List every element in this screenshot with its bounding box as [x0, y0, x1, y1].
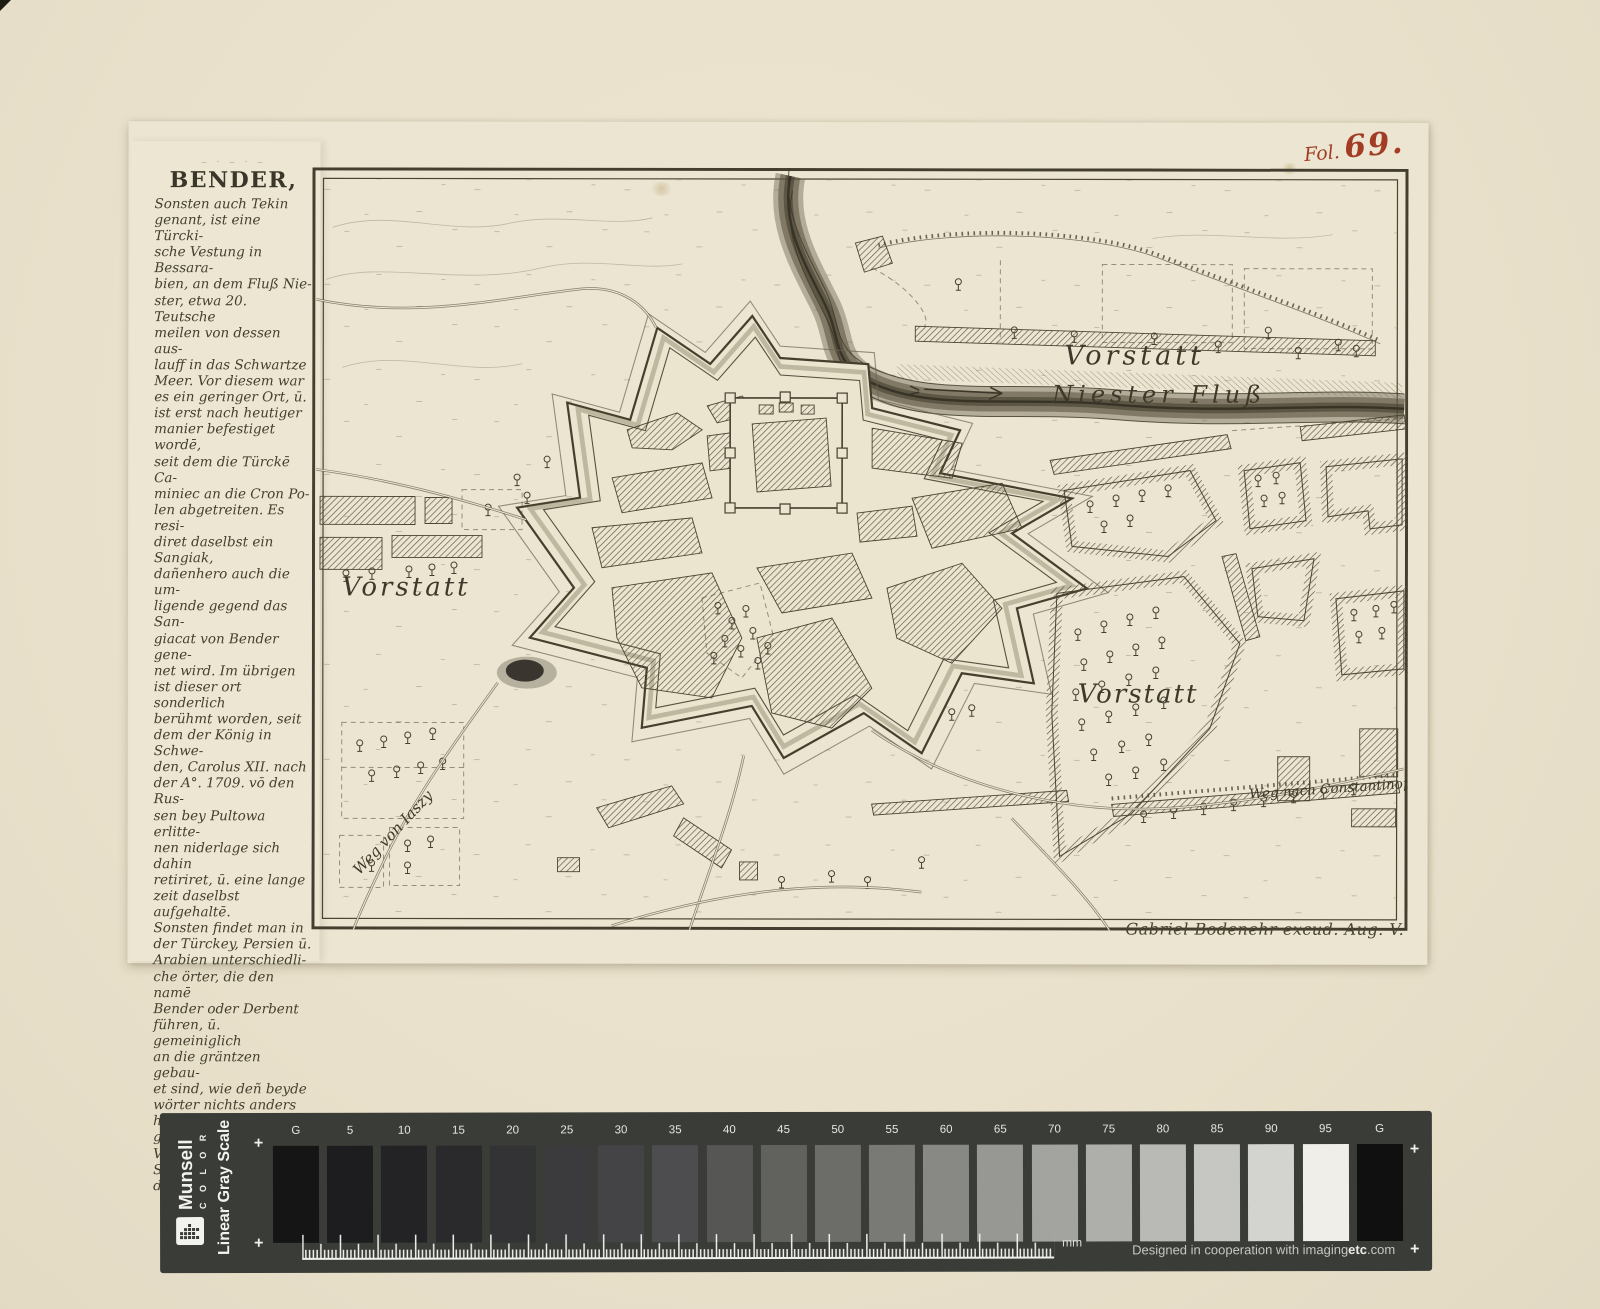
- label-vorstatt-west: Vorstatt: [342, 572, 471, 602]
- grayscale-patch-label: 45: [761, 1124, 807, 1145]
- map-plate: Vorstatt Niester Fluß Vorstatt Vorstatt …: [311, 167, 1408, 931]
- grayscale-patch: 60: [923, 1124, 969, 1242]
- mm-unit-label: mm: [1062, 1236, 1082, 1250]
- registration-plus: +: [1410, 1241, 1419, 1259]
- registration-plus: +: [1410, 1141, 1419, 1159]
- grayscale-patch: 35: [652, 1124, 698, 1242]
- map-sheet: Fol. 69. – · – · – BENDER, Sonsten auch …: [127, 121, 1428, 965]
- description-strip: – · – · – BENDER, Sonsten auch Tekin gen…: [129, 141, 320, 961]
- grayscale-patch: 70: [1032, 1124, 1078, 1242]
- scanner-corner-artifact: [0, 0, 11, 11]
- grayscale-swatch: [1140, 1144, 1186, 1241]
- credit-text: Designed in cooperation with imagingetc.…: [1132, 1242, 1395, 1257]
- grayscale-patch: 75: [1086, 1123, 1132, 1241]
- grayscale-patch: 50: [815, 1124, 861, 1242]
- grayscale-patch: 80: [1140, 1123, 1186, 1241]
- grayscale-patch: 65: [977, 1124, 1023, 1242]
- grayscale-patch-label: 65: [977, 1124, 1023, 1145]
- folio-value: 69.: [1343, 125, 1406, 166]
- grayscale-patch: 30: [598, 1124, 644, 1242]
- label-vorstatt-north: Vorstatt: [1064, 340, 1205, 371]
- label-niester-fluss: Niester Fluß: [1051, 380, 1266, 408]
- registration-plus: +: [254, 1135, 263, 1153]
- grayscale-patch: 15: [435, 1125, 481, 1243]
- grayscale-patch: 10: [381, 1125, 427, 1243]
- grayscale-patch-label: G: [1357, 1123, 1403, 1144]
- grayscale-patch: 90: [1248, 1123, 1294, 1241]
- map-title: BENDER,: [154, 167, 312, 193]
- grayscale-patch-label: 10: [381, 1125, 427, 1146]
- grayscale-patch-label: 25: [544, 1124, 590, 1145]
- credit-part2: etc: [1348, 1242, 1367, 1257]
- grayscale-patches: G5101520253035404550556065707580859095G: [273, 1123, 1403, 1243]
- grayscale-patch-label: 20: [490, 1124, 536, 1145]
- grayscale-patch: 55: [869, 1124, 915, 1242]
- faded-marks: – · – · –: [155, 155, 313, 167]
- grayscale-patch-label: 35: [652, 1124, 698, 1145]
- grayscale-patch-label: 90: [1248, 1123, 1294, 1144]
- label-vorstatt-southeast: Vorstatt: [1078, 679, 1199, 709]
- grayscale-patch: G: [1357, 1123, 1403, 1241]
- grayscale-patch-label: 95: [1302, 1123, 1348, 1144]
- grayscale-patch-label: 55: [869, 1124, 915, 1145]
- munsell-color-label: C O L O R: [198, 1131, 208, 1209]
- grayscale-patch-label: 70: [1032, 1124, 1078, 1145]
- munsell-gray-scale-bar: Munsell C O L O R Linear Gray Scale + + …: [160, 1111, 1432, 1273]
- grayscale-patch: 95: [1302, 1123, 1348, 1241]
- munsell-logo-icon: [176, 1217, 204, 1250]
- grayscale-patch-label: 50: [815, 1124, 861, 1145]
- grayscale-patch: 25: [544, 1124, 590, 1242]
- grayscale-patch-label: 60: [923, 1124, 969, 1145]
- grayscale-patch: 85: [1194, 1123, 1240, 1241]
- grayscale-patch-label: 85: [1194, 1123, 1240, 1144]
- grayscale-patch-label: 75: [1086, 1123, 1132, 1144]
- grayscale-patch: G: [273, 1125, 319, 1243]
- grayscale-patch-label: 5: [327, 1125, 373, 1146]
- scanned-archival-image: Fol. 69. – · – · – BENDER, Sonsten auch …: [0, 0, 1600, 1309]
- grayscale-patch: 40: [706, 1124, 752, 1242]
- grayscale-swatch: [1302, 1144, 1348, 1241]
- grayscale-patch: 20: [490, 1124, 536, 1242]
- grayscale-patch-label: 15: [435, 1125, 481, 1146]
- grayscale-swatch: [1194, 1144, 1240, 1241]
- grayscale-patch: 5: [327, 1125, 373, 1243]
- ink-smudge: [497, 657, 557, 689]
- munsell-brand: Munsell: [176, 1139, 198, 1210]
- folio-number: Fol. 69.: [1302, 125, 1405, 170]
- mm-ruler: [302, 1228, 1062, 1268]
- grayscale-swatch: [1357, 1144, 1403, 1241]
- grayscale-patch: 45: [761, 1124, 807, 1242]
- grayscale-patch-label: 80: [1140, 1123, 1186, 1144]
- grayscale-swatch: [1086, 1144, 1132, 1241]
- grayscale-patch-label: 40: [706, 1124, 752, 1145]
- linear-gray-scale-label: Linear Gray Scale: [216, 1120, 234, 1255]
- grayscale-patch-label: 30: [598, 1124, 644, 1145]
- credit-part3: .com: [1367, 1242, 1395, 1257]
- citadel: [725, 392, 847, 514]
- registration-plus: +: [254, 1235, 263, 1253]
- grayscale-swatch: [1248, 1144, 1294, 1241]
- grayscale-patch-label: G: [273, 1125, 319, 1146]
- description-text: Sonsten auch Tekin genant, ist eine Türc…: [153, 196, 312, 1194]
- engraver-imprint: Gabriel Bodenehr excud. Aug. V.: [1125, 919, 1405, 938]
- folio-prefix: Fol.: [1303, 141, 1340, 166]
- map-engraving: Vorstatt Niester Fluß Vorstatt Vorstatt …: [311, 167, 1408, 931]
- credit-part1: Designed in cooperation with imaging: [1132, 1242, 1348, 1257]
